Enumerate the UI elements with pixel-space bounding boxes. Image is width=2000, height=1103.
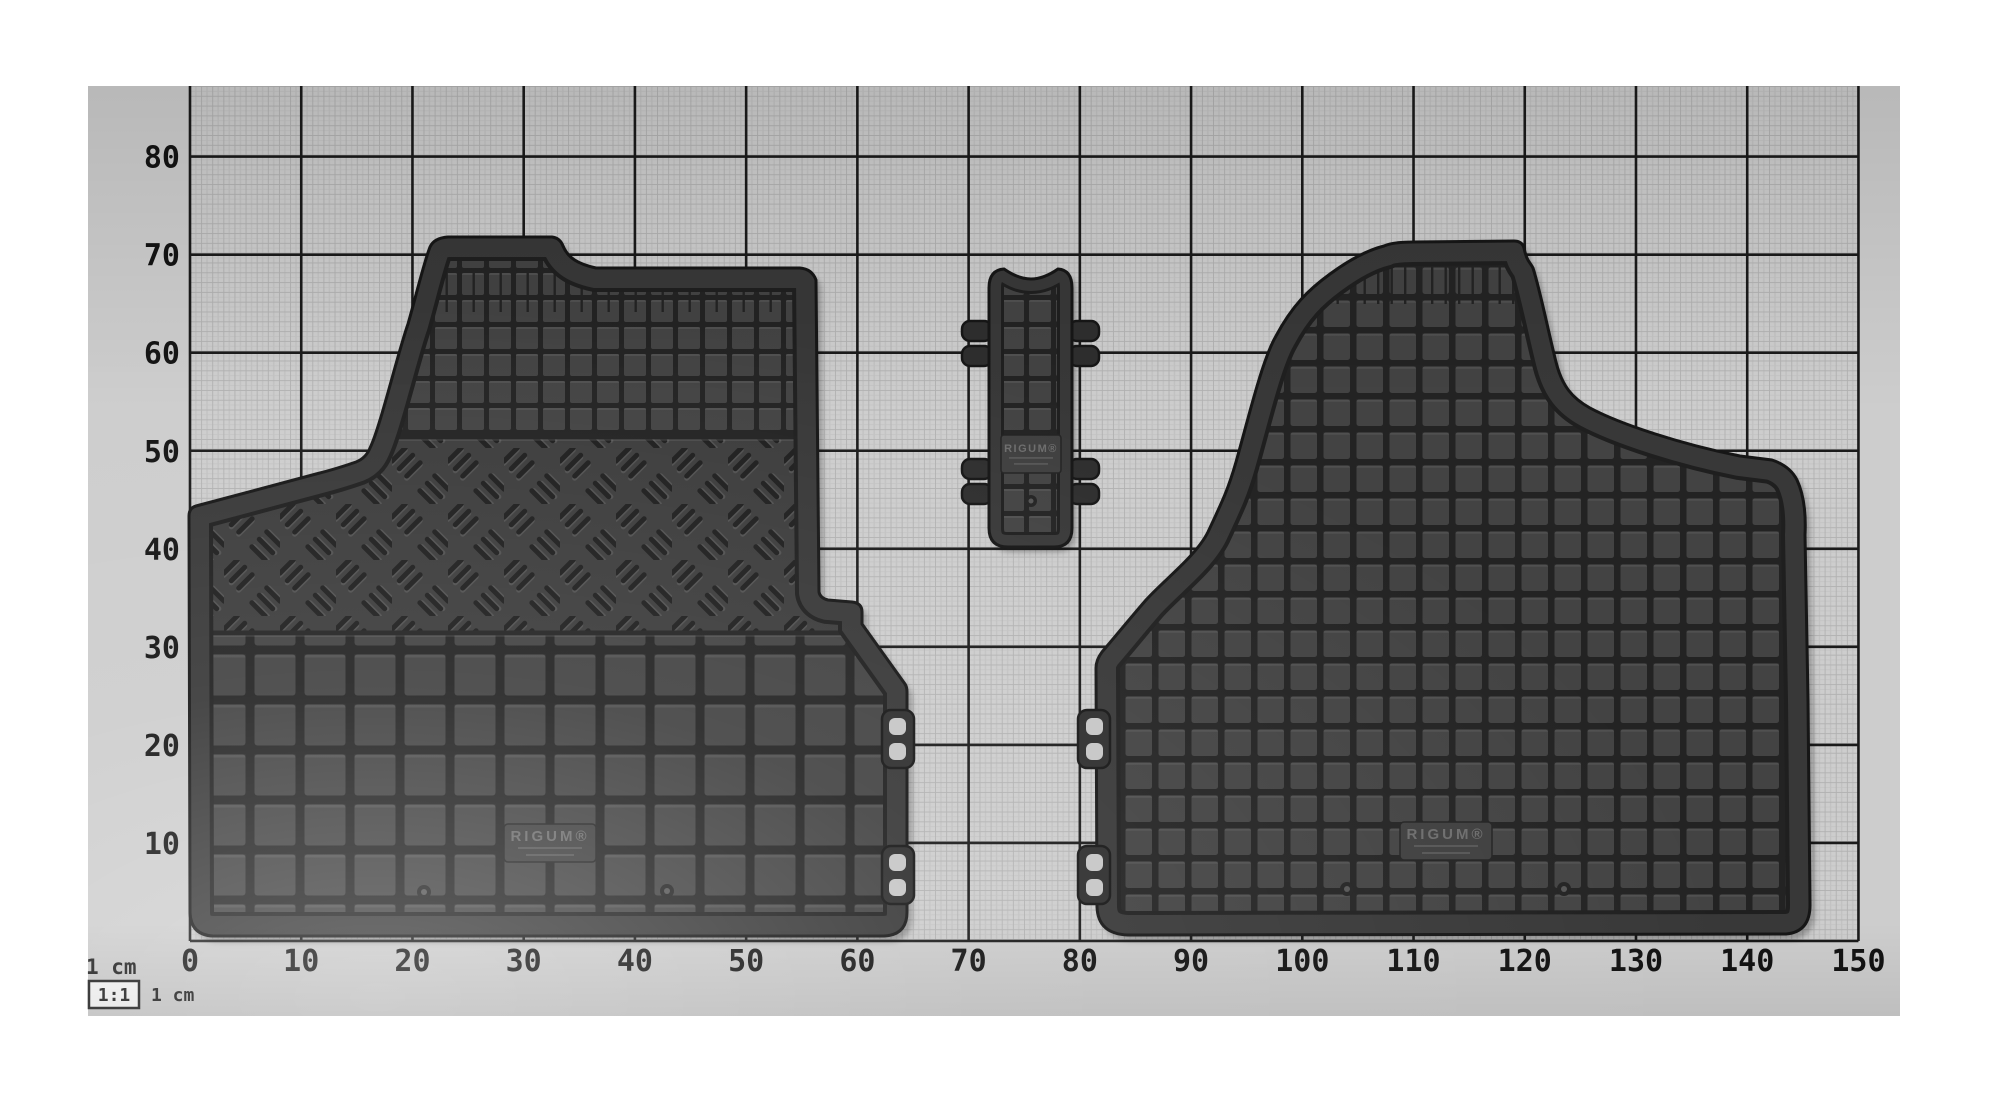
photo-scene: RIGUM® RIGUM xyxy=(0,0,2000,1103)
screenshot-canvas: RIGUM® RIGUM xyxy=(0,0,2000,1103)
photo-shading xyxy=(88,86,1900,1016)
